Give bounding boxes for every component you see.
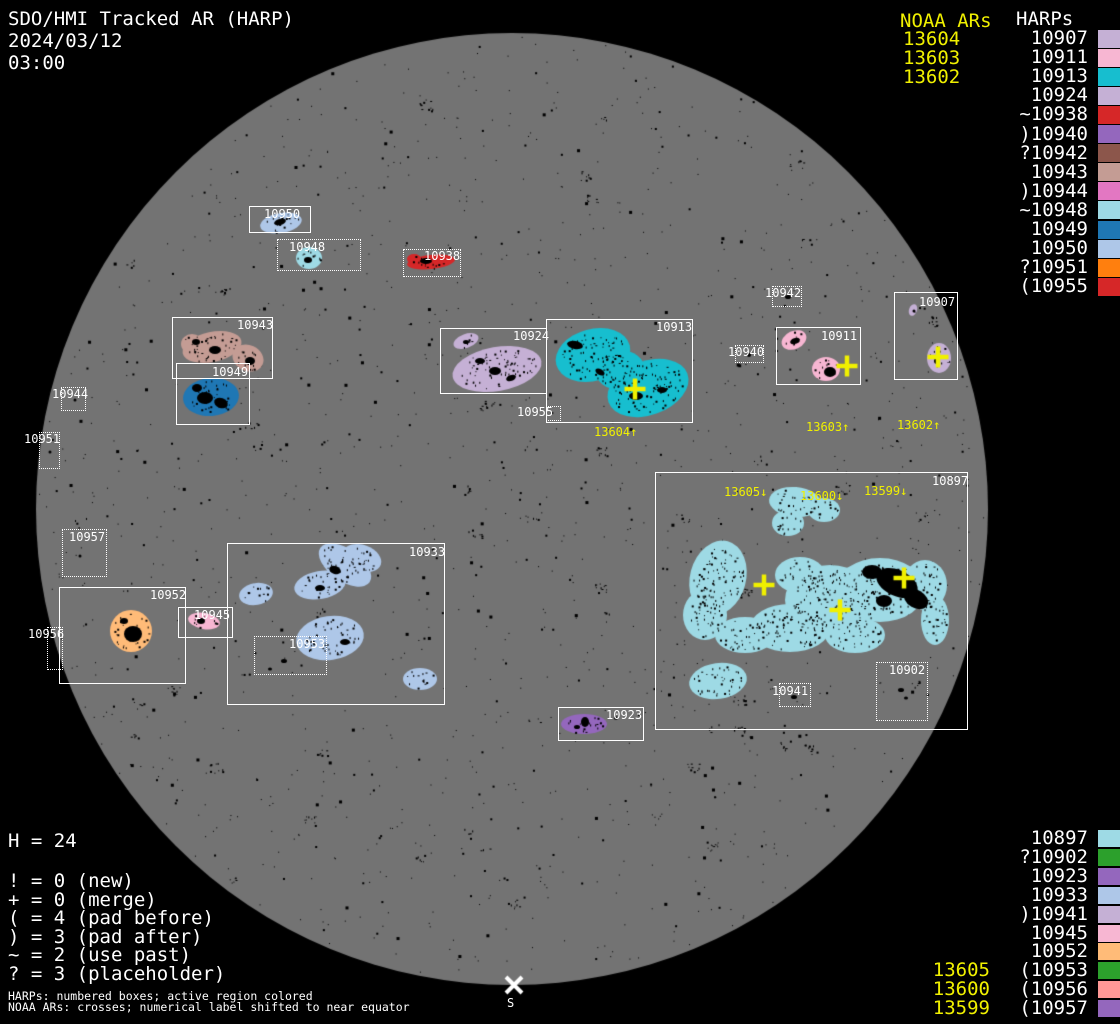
harp-box-label: 10941 [772,685,808,697]
noaa-legend-entry: 13599 [933,999,990,1018]
harp-box-label: 10938 [424,250,460,262]
harp-legend-entry: 10943 [1031,163,1088,182]
harp-color-swatch [1098,125,1120,143]
harp-box-label: 10957 [69,531,105,543]
harp-box-label: 10933 [409,546,445,558]
harp-color-swatch [1098,887,1120,904]
harp-legend-entry: )10940 [1019,125,1088,144]
harp-box-label: 10897 [932,475,968,487]
noaa-shifted-label: 13602↑ [897,419,940,431]
harp-box-label: 10907 [919,296,955,308]
header-date: 2024/03/12 [8,31,122,51]
harp-box-label: 10945 [194,609,230,621]
harp-color-swatch [1098,868,1120,885]
harp-tracker-view: SDO/HMI Tracked AR (HARP) 2024/03/12 03:… [0,0,1120,1024]
harp-color-swatch [1098,144,1120,162]
harp-box-10933 [227,543,445,705]
harp-box-10913 [546,319,693,423]
harp-color-swatch [1098,925,1120,942]
harp-box-label: 10943 [237,319,273,331]
harp-legend-entry: ~10938 [1019,105,1088,124]
harp-legend-entry: (10957 [1019,999,1088,1018]
harp-color-swatch [1098,30,1120,48]
harp-color-swatch [1098,49,1120,67]
header-time: 03:00 [8,53,65,73]
flag-legend-line: ! = 0 (new) [8,871,134,891]
harp-box-label: 10949 [212,366,248,378]
harp-color-swatch [1098,981,1120,998]
harp-color-swatch [1098,1000,1120,1017]
harp-box-label: 10956 [28,628,64,640]
harp-box-label: 10953 [289,638,325,650]
harp-box-label: 10942 [765,287,801,299]
noaa-shifted-label: 13600↓ [800,490,843,502]
harp-color-swatch [1098,163,1120,181]
harp-box-label: 10948 [289,241,325,253]
harp-color-swatch [1098,87,1120,105]
harp-box-label: 10924 [513,330,549,342]
harp-box-label: 10951 [24,433,60,445]
page-title: SDO/HMI Tracked AR (HARP) [8,9,294,29]
harp-legend-entry: (10955 [1019,277,1088,296]
noaa-shifted-label: 13599↓ [864,485,907,497]
noaa-legend-entry: 13603 [903,48,960,68]
harp-box-label: 10952 [150,589,186,601]
harp-color-swatch [1098,68,1120,86]
harp-color-swatch [1098,849,1120,866]
harp-box-label: 10923 [606,709,642,721]
noaa-legend-entry: 13602 [903,67,960,87]
harp-color-swatch [1098,943,1120,960]
harp-box-label: 10913 [656,321,692,333]
harp-color-swatch [1098,201,1120,219]
harp-box-label: 10902 [889,664,925,676]
harp-color-swatch [1098,106,1120,124]
harp-legend-entry: 10923 [1031,867,1088,886]
harp-color-swatch [1098,906,1120,923]
noaa-legend-entry: 13604 [903,29,960,49]
flag-legend-line: ? = 3 (placeholder) [8,964,225,984]
noaa-shifted-label: 13604↑ [594,426,637,438]
harp-box-label: 10944 [52,388,88,400]
harp-legend-entry: ?10942 [1019,144,1088,163]
noaa-shifted-label: 13603↑ [806,421,849,433]
harp-legend-entry: 10933 [1031,886,1088,905]
harp-color-swatch [1098,259,1120,277]
harp-count: H = 24 [8,831,77,851]
harp-box-label: 10950 [264,208,300,220]
noaa-shifted-label: 13605↓ [724,486,767,498]
harp-box-label: 10911 [821,330,857,342]
harp-color-swatch [1098,962,1120,979]
harp-color-swatch [1098,830,1120,847]
harp-color-swatch [1098,221,1120,239]
harp-legend-entry: )10941 [1019,905,1088,924]
harps-column-title: HARPs [1016,9,1073,29]
south-pole-label: S [507,996,514,1010]
footnote-line: NOAA ARs: crosses; numerical label shift… [8,1002,410,1014]
harp-color-swatch [1098,278,1120,296]
harp-box-label: 10940 [728,346,764,358]
harp-color-swatch [1098,240,1120,258]
harp-color-swatch [1098,182,1120,200]
harp-box-label: 10955 [517,406,553,418]
harp-legend-entry: )10944 [1019,182,1088,201]
